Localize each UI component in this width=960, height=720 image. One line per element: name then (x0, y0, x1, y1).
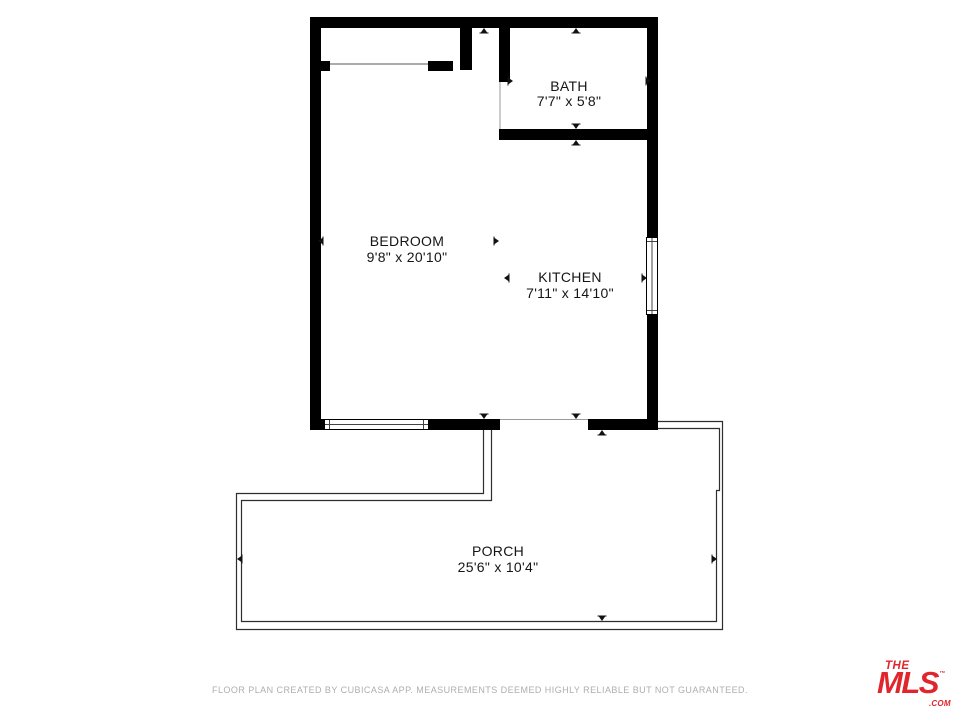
bath-left-wall (499, 17, 510, 82)
room-label-kitchen: KITCHEN (538, 269, 602, 285)
bath-bottom-wall (499, 129, 658, 140)
window-bedroom-south (325, 420, 429, 430)
floor-plan-page: BATH 7'7" x 5'8" BEDROOM 9'8" x 20'10" K… (0, 0, 960, 720)
arrow-kitchen-top (572, 140, 581, 145)
themls-logo-trademark: ™ (939, 671, 945, 677)
wall-top (310, 17, 658, 28)
arrow-bath-top (572, 28, 581, 33)
room-label-bedroom: BEDROOM (370, 233, 444, 249)
closet-stub-wall (460, 17, 472, 70)
porch-outer-outline (237, 422, 723, 630)
arrow-bath-bottom (572, 124, 581, 129)
arrow-kitchen-bottom (572, 414, 581, 419)
arrow-porch-top (598, 430, 607, 435)
room-label-porch: PORCH (472, 543, 524, 559)
wall-bottom-right-segment (588, 419, 658, 430)
themls-logo-mls: MLS (877, 667, 938, 698)
arrow-bedroom-bottom (480, 414, 489, 419)
room-dimensions-bath: 7'7" x 5'8" (537, 93, 602, 109)
wall-right (647, 17, 658, 430)
disclaimer-text: FLOOR PLAN CREATED BY CUBICASA APP. MEAS… (0, 685, 960, 695)
arrow-bedroom-top (480, 28, 489, 33)
room-dimensions-bedroom: 9'8" x 20'10" (367, 249, 448, 265)
dimension-arrows (237, 28, 717, 621)
arrow-porch-bottom (598, 616, 607, 621)
arrow-bedroom-right (494, 237, 499, 246)
wall-left (310, 17, 321, 430)
closet-left-cap (320, 61, 330, 71)
themls-logo: THE MLS ™ .COM (876, 654, 960, 714)
arrow-kitchen-left (504, 274, 509, 283)
themls-logo-com: .COM (929, 700, 951, 708)
room-dimensions-kitchen: 7'11" x 14'10" (526, 285, 614, 301)
porch-inner-outline (242, 429, 720, 622)
room-label-bath: BATH (550, 78, 588, 94)
closet-right-cap (428, 61, 453, 71)
room-dimensions-porch: 25'6" x 10'4" (458, 559, 539, 575)
floor-plan-drawing: BATH 7'7" x 5'8" BEDROOM 9'8" x 20'10" K… (0, 0, 960, 720)
window-kitchen-east (647, 238, 658, 315)
